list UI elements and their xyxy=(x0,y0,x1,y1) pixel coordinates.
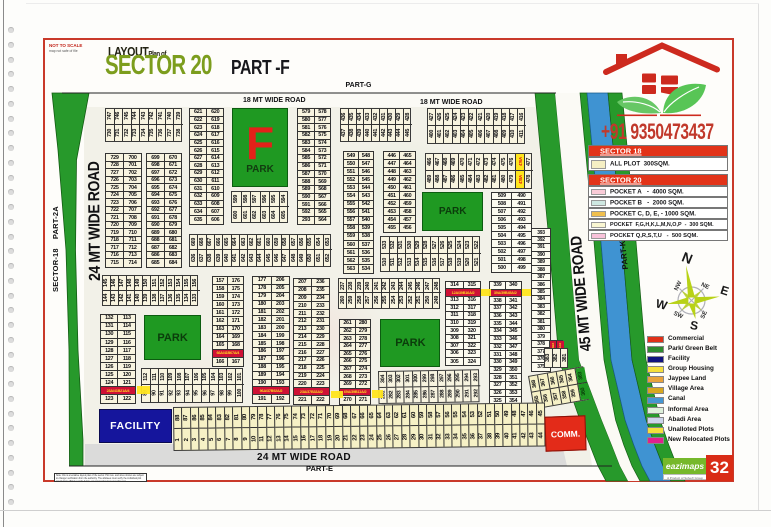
svg-text:S: S xyxy=(689,318,699,333)
svg-text:W: W xyxy=(654,296,669,313)
svg-text:SE: SE xyxy=(700,310,709,320)
svg-text:E: E xyxy=(719,283,731,299)
svg-text:NE: NE xyxy=(700,282,710,291)
svg-text:N: N xyxy=(680,249,695,268)
svg-text:SW: SW xyxy=(672,311,684,321)
